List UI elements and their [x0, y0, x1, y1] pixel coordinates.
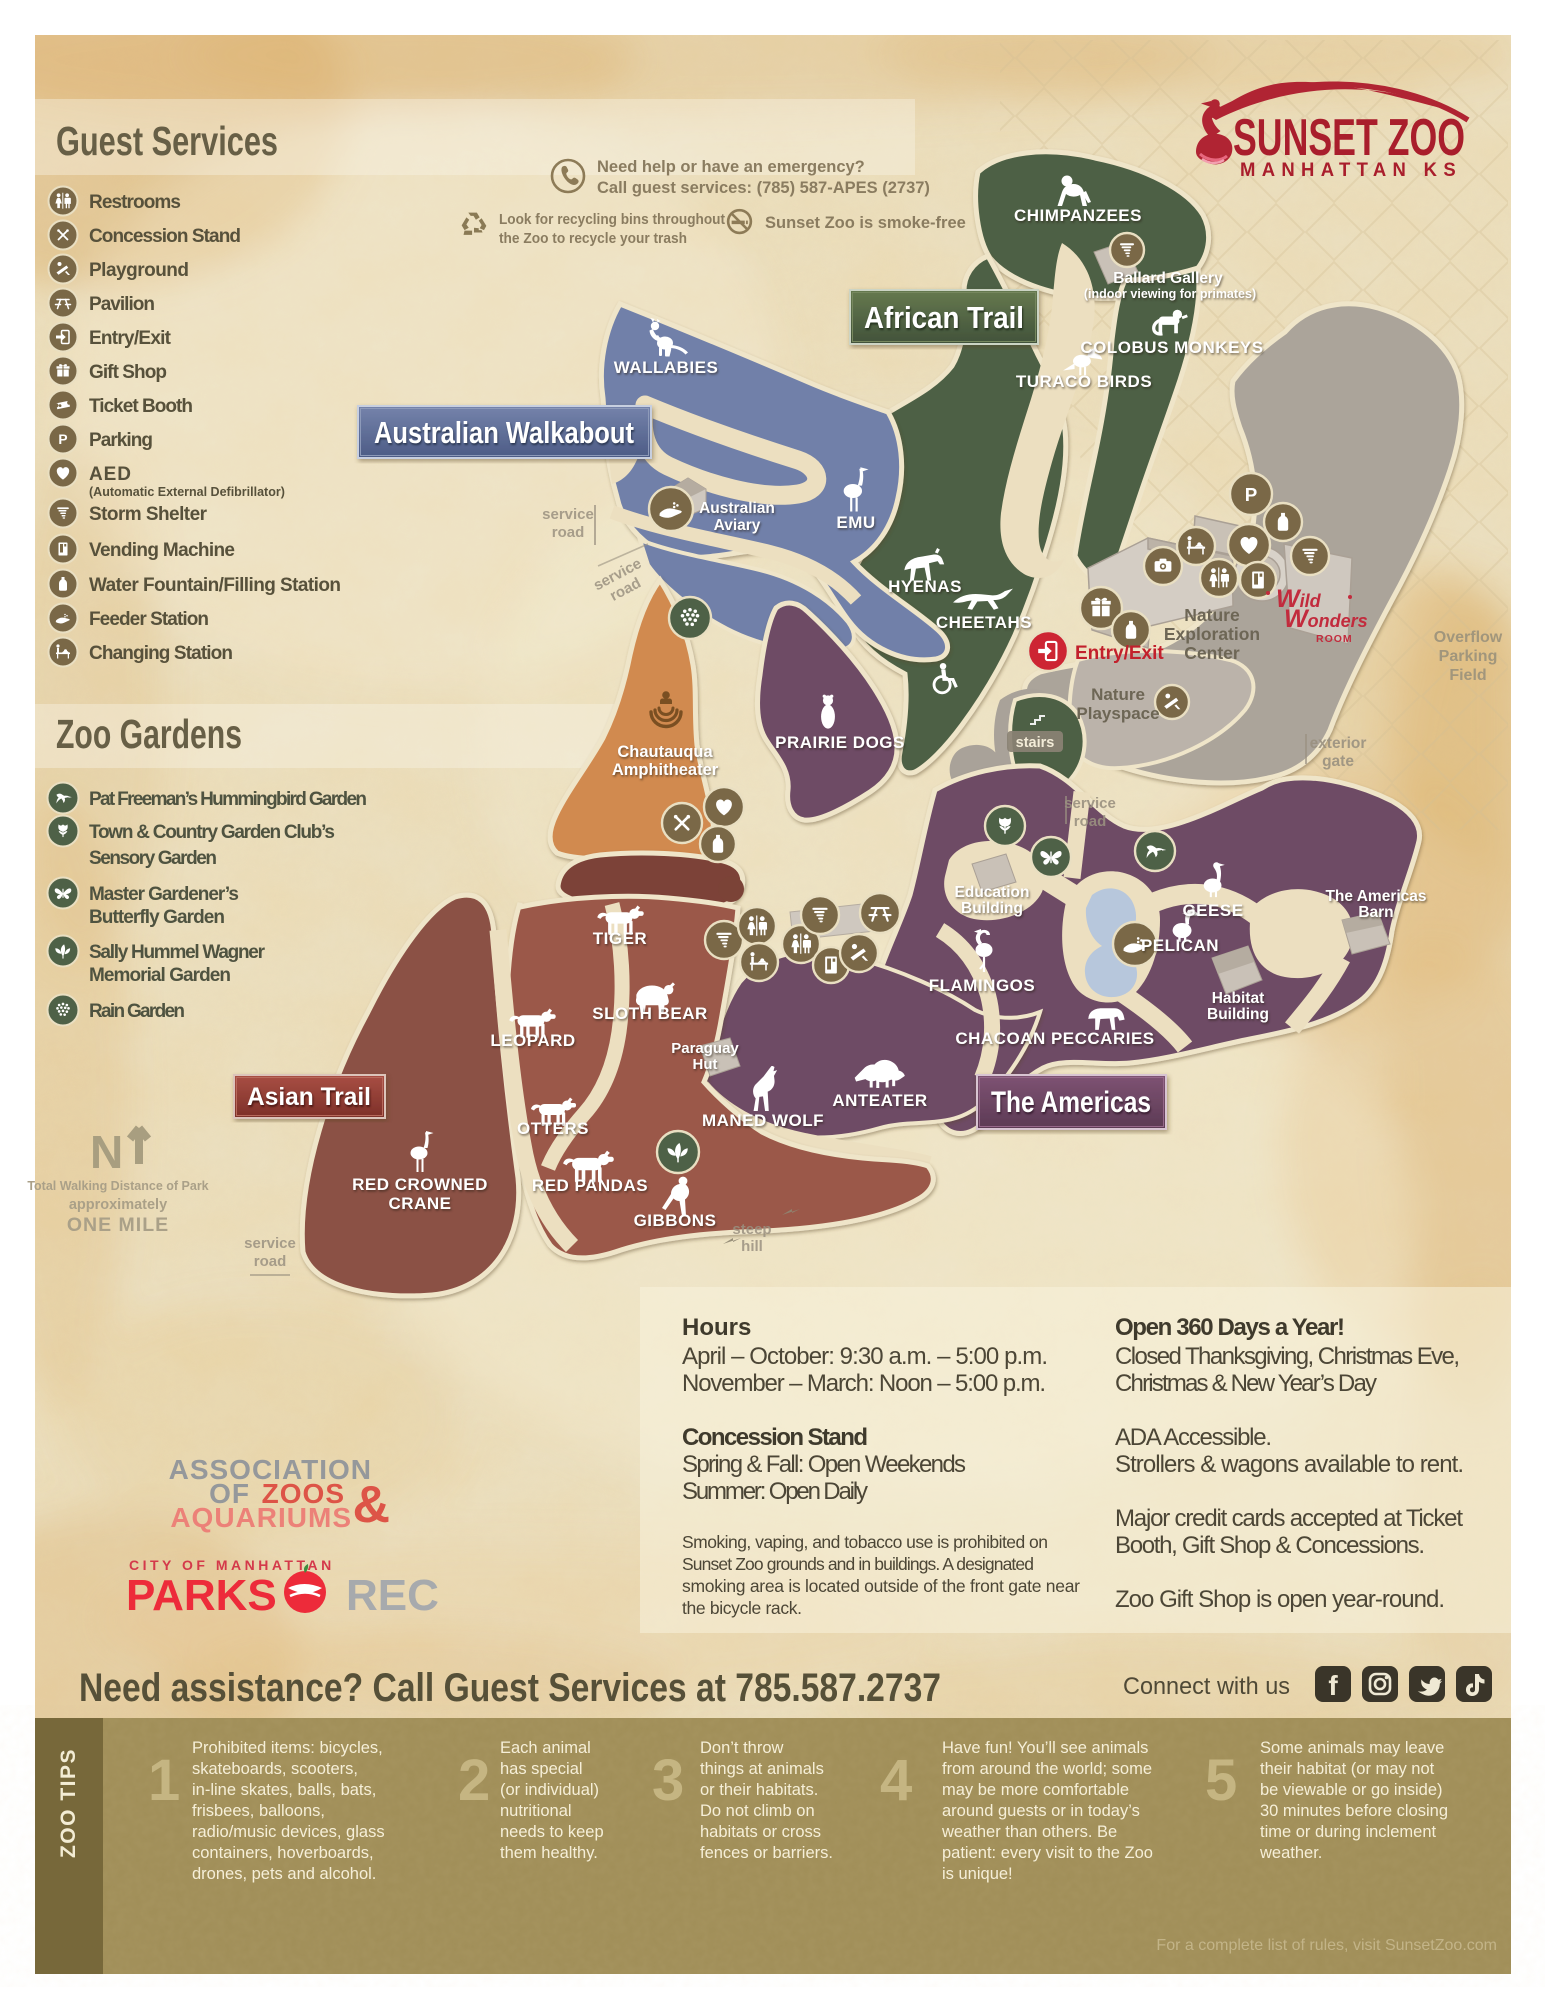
svg-text:weather than others. Be: weather than others. Be — [941, 1823, 1117, 1841]
svg-text:the Zoo to recycle your trash: the Zoo to recycle your trash — [499, 231, 687, 247]
svg-text:EMU: EMU — [836, 513, 875, 532]
svg-text:patient: every visit to the Zo: patient: every visit to the Zoo — [942, 1844, 1153, 1862]
svg-text:ADA Accessible.: ADA Accessible. — [1115, 1424, 1272, 1451]
svg-text:WALLABIES: WALLABIES — [614, 358, 719, 377]
svg-text:HYENAS: HYENAS — [888, 577, 962, 596]
svg-text:road: road — [552, 524, 585, 541]
svg-text:Overflow: Overflow — [1434, 629, 1503, 646]
svg-text:road: road — [254, 1253, 287, 1270]
svg-text:around guests or in today’s: around guests or in today’s — [942, 1802, 1140, 1820]
svg-text:Need assistance? Call Guest S: Need assistance? Call Guest Services at … — [79, 1666, 941, 1710]
svg-text:Zoo Gift Shop is open year-rou: Zoo Gift Shop is open year-round. — [1115, 1586, 1445, 1613]
svg-text:Field: Field — [1449, 667, 1486, 684]
svg-text:2: 2 — [458, 1748, 490, 1813]
svg-text:(indoor viewing for primates): (indoor viewing for primates) — [1084, 287, 1256, 301]
svg-text:ANTEATER: ANTEATER — [832, 1091, 927, 1110]
svg-text:TIGER: TIGER — [593, 929, 647, 948]
svg-text:PRAIRIE DOGS: PRAIRIE DOGS — [775, 733, 905, 752]
svg-text:PARKS: PARKS — [126, 1571, 277, 1620]
svg-text:30 minutes before closing: 30 minutes before closing — [1260, 1802, 1448, 1820]
svg-text:REC: REC — [346, 1571, 439, 1620]
svg-text:service: service — [1064, 795, 1116, 812]
svg-text:Australian Walkabout: Australian Walkabout — [374, 415, 634, 450]
svg-text:Building: Building — [1207, 1006, 1269, 1023]
svg-text:Pat Freeman’s Hummingbird Gard: Pat Freeman’s Hummingbird Garden — [89, 789, 367, 810]
svg-text:The Americas: The Americas — [991, 1086, 1151, 1119]
svg-text:November – March: Noon – 5:00: November – March: Noon – 5:00 p.m. — [682, 1370, 1046, 1397]
svg-text:from around the world; some: from around the world; some — [942, 1760, 1152, 1778]
svg-text:the bicycle rack.: the bicycle rack. — [682, 1598, 802, 1618]
svg-text:Look for recycling bins throug: Look for recycling bins throughout — [499, 212, 725, 228]
svg-text:Master Gardener’s: Master Gardener’s — [89, 884, 239, 905]
svg-text:Changing Station: Changing Station — [89, 643, 233, 664]
svg-text:Spring & Fall: Open Weekends: Spring & Fall: Open Weekends — [682, 1451, 966, 1478]
svg-text:Town & Country Garden Club’s: Town & Country Garden Club’s — [89, 822, 335, 843]
svg-text:&: & — [352, 1476, 390, 1534]
svg-text:Sensory Garden: Sensory Garden — [89, 848, 217, 869]
svg-text:stairs: stairs — [1016, 735, 1055, 751]
svg-text:Sunset Zoo is smoke-free: Sunset Zoo is smoke-free — [765, 214, 966, 232]
svg-text:nutritional: nutritional — [500, 1802, 572, 1820]
svg-text:Concession Stand: Concession Stand — [89, 226, 241, 247]
svg-text:African Trail: African Trail — [864, 300, 1024, 335]
svg-text:skateboards, scooters,: skateboards, scooters, — [192, 1760, 358, 1778]
svg-text:frisbees, balloons,: frisbees, balloons, — [192, 1802, 325, 1820]
svg-text:Australian: Australian — [699, 500, 775, 517]
svg-text:(or individual): (or individual) — [500, 1781, 599, 1799]
svg-text:Prohibited items: bicycles,: Prohibited items: bicycles, — [192, 1739, 383, 1757]
svg-text:Some animals may leave: Some animals may leave — [1260, 1739, 1444, 1757]
svg-text:road: road — [1074, 813, 1107, 830]
svg-text:Smoking, vaping, and tobacco u: Smoking, vaping, and tobacco use is proh… — [682, 1532, 1048, 1552]
svg-text:Christmas & New Year’s Day: Christmas & New Year’s Day — [1115, 1370, 1377, 1397]
svg-text:GIBBONS: GIBBONS — [634, 1211, 717, 1230]
svg-text:their habitat (or may not: their habitat (or may not — [1260, 1760, 1435, 1778]
svg-text:approximately: approximately — [69, 1197, 167, 1213]
svg-text:Zoo Gardens: Zoo Gardens — [56, 711, 242, 757]
svg-text:April – October: 9:30 a.m. – 5: April – October: 9:30 a.m. – 5:00 p.m. — [682, 1343, 1048, 1370]
svg-text:Ballard Gallery: Ballard Gallery — [1113, 270, 1223, 287]
svg-text:Education: Education — [955, 884, 1030, 901]
svg-text:OTTERS: OTTERS — [517, 1119, 589, 1138]
svg-text:f: f — [1328, 1670, 1338, 1701]
svg-text:Butterfly Garden: Butterfly Garden — [89, 907, 225, 928]
svg-text:Center: Center — [1184, 643, 1240, 663]
svg-text:Pavilion: Pavilion — [89, 294, 155, 315]
svg-text:ROOM: ROOM — [1316, 633, 1353, 645]
svg-text:TURACO BIRDS: TURACO BIRDS — [1016, 372, 1152, 391]
svg-text:Playground: Playground — [89, 260, 189, 281]
svg-text:MANED WOLF: MANED WOLF — [702, 1111, 824, 1130]
svg-text:Major credit cards accepted at: Major credit cards accepted at Ticket — [1115, 1505, 1463, 1532]
svg-text:time or during inclement: time or during inclement — [1260, 1823, 1436, 1841]
svg-text:RED CROWNED: RED CROWNED — [352, 1175, 488, 1194]
svg-text:them healthy.: them healthy. — [500, 1844, 598, 1862]
svg-text:RED PANDAS: RED PANDAS — [532, 1176, 648, 1195]
svg-text:5: 5 — [1205, 1748, 1237, 1813]
svg-text:ZOO TIPS: ZOO TIPS — [57, 1748, 80, 1858]
svg-text:N: N — [90, 1126, 123, 1178]
svg-text:Total Walking Distance of Park: Total Walking Distance of Park — [27, 1179, 208, 1193]
svg-text:smoking area is located outsid: smoking area is located outside of the f… — [682, 1576, 1080, 1596]
svg-text:drones, pets and alcohol.: drones, pets and alcohol. — [192, 1865, 376, 1883]
svg-text:AQUARIUMS: AQUARIUMS — [170, 1502, 352, 1533]
svg-text:Strollers & wagons available t: Strollers & wagons available to rent. — [1115, 1451, 1464, 1478]
svg-text:gate: gate — [1322, 753, 1354, 770]
svg-text:Call guest services: (785) 587: Call guest services: (785) 587-APES (273… — [597, 179, 930, 197]
svg-text:Ticket Booth: Ticket Booth — [89, 396, 193, 417]
svg-text:GEESE: GEESE — [1182, 901, 1243, 920]
svg-text:4: 4 — [880, 1748, 912, 1813]
svg-text:things at animals: things at animals — [700, 1760, 824, 1778]
svg-text:Rain Garden: Rain Garden — [89, 1001, 185, 1022]
svg-text:has special: has special — [500, 1760, 583, 1778]
svg-text:be viewable or go inside): be viewable or go inside) — [1260, 1781, 1443, 1799]
svg-text:Each animal: Each animal — [500, 1739, 591, 1757]
svg-text:AED: AED — [89, 464, 131, 485]
svg-text:radio/music devices, glass: radio/music devices, glass — [192, 1823, 385, 1841]
svg-text:Habitat: Habitat — [1212, 990, 1265, 1007]
svg-text:Do not climb on: Do not climb on — [700, 1802, 815, 1820]
svg-text:Closed Thanksgiving, Christmas: Closed Thanksgiving, Christmas Eve, — [1115, 1343, 1460, 1370]
svg-text:PELICAN: PELICAN — [1141, 936, 1219, 955]
svg-text:Aviary: Aviary — [714, 517, 761, 534]
svg-text:SLOTH BEAR: SLOTH BEAR — [592, 1004, 708, 1023]
svg-text:Water Fountain/Filling Station: Water Fountain/Filling Station — [89, 575, 341, 596]
svg-text:CHIMPANZEES: CHIMPANZEES — [1014, 206, 1142, 225]
svg-text:Paraguay: Paraguay — [671, 1040, 739, 1057]
svg-text:Vending Machine: Vending Machine — [89, 540, 235, 561]
svg-text:Entry/Exit: Entry/Exit — [89, 328, 172, 349]
svg-text:or their habitats.: or their habitats. — [700, 1781, 818, 1799]
svg-text:Entry/Exit: Entry/Exit — [1075, 643, 1164, 664]
svg-text:Playspace: Playspace — [1076, 704, 1159, 723]
svg-text:Parking: Parking — [89, 430, 153, 451]
svg-text:weather.: weather. — [1259, 1844, 1322, 1862]
svg-text:1: 1 — [148, 1748, 180, 1813]
svg-text:The Americas: The Americas — [1325, 888, 1426, 905]
svg-text:SUNSET ZOO: SUNSET ZOO — [1233, 109, 1465, 167]
svg-text:Summer: Open Daily: Summer: Open Daily — [682, 1478, 868, 1505]
svg-text:Hut: Hut — [693, 1056, 718, 1073]
svg-text:is unique!: is unique! — [942, 1865, 1013, 1883]
svg-text:in-line skates, balls, bats,: in-line skates, balls, bats, — [192, 1781, 376, 1799]
svg-text:MANHATTAN KS: MANHATTAN KS — [1240, 160, 1462, 181]
svg-text:ONE MILE: ONE MILE — [67, 1214, 169, 1236]
svg-text:CRANE: CRANE — [389, 1194, 452, 1213]
svg-text:hill: hill — [741, 1238, 763, 1255]
svg-text:Connect with us: Connect with us — [1123, 1673, 1290, 1700]
svg-text:Nature: Nature — [1184, 605, 1240, 625]
svg-text:habitats or cross: habitats or cross — [700, 1823, 821, 1841]
svg-text:Barn: Barn — [1358, 904, 1393, 921]
svg-text:steep: steep — [732, 1221, 771, 1238]
svg-text:Open 360 Days a Year!: Open 360 Days a Year! — [1115, 1314, 1345, 1341]
svg-text:Restrooms: Restrooms — [89, 192, 181, 213]
svg-text:Gift Shop: Gift Shop — [89, 362, 167, 383]
svg-text:Have fun! You’ll see animals: Have fun! You’ll see animals — [942, 1739, 1148, 1757]
svg-text:Feeder Station: Feeder Station — [89, 609, 209, 630]
svg-text:Building: Building — [961, 900, 1023, 917]
svg-text:service: service — [542, 506, 594, 523]
svg-text:may be more comfortable: may be more comfortable — [942, 1781, 1129, 1799]
svg-text:(Automatic External Defibrilla: (Automatic External Defibrillator) — [89, 485, 285, 499]
svg-text:3: 3 — [652, 1748, 684, 1813]
svg-text:LEOPARD: LEOPARD — [490, 1031, 575, 1050]
svg-text:Sally Hummel Wagner: Sally Hummel Wagner — [89, 942, 266, 963]
svg-text:Concession Stand: Concession Stand — [682, 1424, 868, 1451]
svg-text:fences or barriers.: fences or barriers. — [700, 1844, 833, 1862]
svg-text:exterior: exterior — [1310, 735, 1367, 752]
svg-text:Asian Trail: Asian Trail — [247, 1083, 371, 1111]
svg-text:Need help or have an emergency: Need help or have an emergency? — [597, 158, 865, 176]
svg-text:FLAMINGOS: FLAMINGOS — [929, 976, 1036, 995]
svg-text:Hours: Hours — [682, 1314, 751, 1341]
svg-text:containers, hoverboards,: containers, hoverboards, — [192, 1844, 374, 1862]
svg-text:Amphitheater: Amphitheater — [612, 761, 719, 779]
svg-text:Storm Shelter: Storm Shelter — [89, 504, 208, 525]
svg-text:CHEETAHS: CHEETAHS — [936, 613, 1032, 632]
svg-text:CHACOAN PECCARIES: CHACOAN PECCARIES — [955, 1029, 1154, 1048]
svg-text:Exploration: Exploration — [1164, 624, 1260, 644]
svg-text:Don’t throw: Don’t throw — [700, 1739, 784, 1757]
svg-text:needs to keep: needs to keep — [500, 1823, 604, 1841]
svg-text:Nature: Nature — [1091, 685, 1145, 704]
svg-text:COLOBUS MONKEYS: COLOBUS MONKEYS — [1080, 338, 1263, 357]
svg-text:Sunset Zoo grounds and in buil: Sunset Zoo grounds and in buildings. A d… — [682, 1554, 1034, 1574]
svg-text:For a complete list of rules,: For a complete list of rules, visit Suns… — [1156, 1937, 1497, 1954]
svg-text:Booth, Gift Shop & Concessions: Booth, Gift Shop & Concessions. — [1115, 1532, 1425, 1559]
svg-text:Parking: Parking — [1439, 648, 1498, 665]
svg-text:service: service — [244, 1235, 296, 1252]
svg-text:Memorial Garden: Memorial Garden — [89, 965, 231, 986]
svg-text:Chautauqua: Chautauqua — [617, 743, 713, 761]
svg-text:Guest Services: Guest Services — [56, 118, 278, 164]
